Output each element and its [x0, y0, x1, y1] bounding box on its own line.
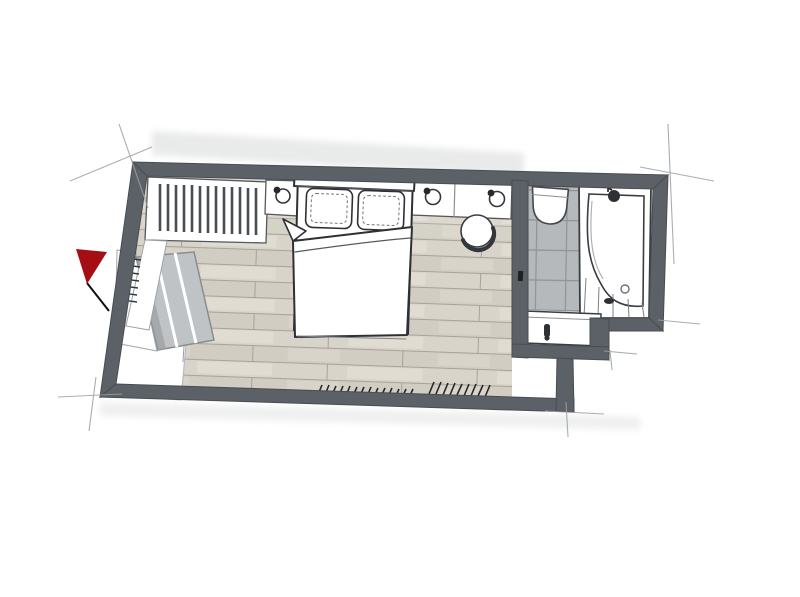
duvet: [293, 227, 412, 337]
bathroom-bottom-wall: [512, 344, 609, 360]
toilet: [532, 187, 569, 225]
red-flag-icon: [76, 249, 107, 284]
divider-wall: [512, 180, 528, 358]
floorplan-image: [0, 0, 800, 597]
bath-faucet-icon: [608, 190, 620, 202]
lamp-switch-dot: [488, 190, 495, 197]
pillow-right: [357, 190, 404, 231]
right-wall: [649, 175, 668, 331]
pillow-left: [305, 188, 352, 229]
console-nightstand-right: [411, 180, 512, 219]
basin-faucet-icon: [544, 324, 550, 337]
lamp-switch-dot: [424, 188, 431, 195]
wardrobe-body: [145, 177, 268, 243]
door-hinge-mark: [518, 271, 524, 281]
round-chair: [461, 215, 494, 250]
red-flag-marker: [76, 249, 109, 311]
double-bed: [283, 169, 415, 339]
flag-pole: [87, 283, 109, 311]
tub-overflow: [604, 298, 614, 304]
floorplan-svg: [0, 0, 800, 597]
stub-wall: [556, 358, 574, 412]
lamp-switch-dot: [274, 187, 281, 194]
basin-faucet-dot: [544, 335, 549, 340]
